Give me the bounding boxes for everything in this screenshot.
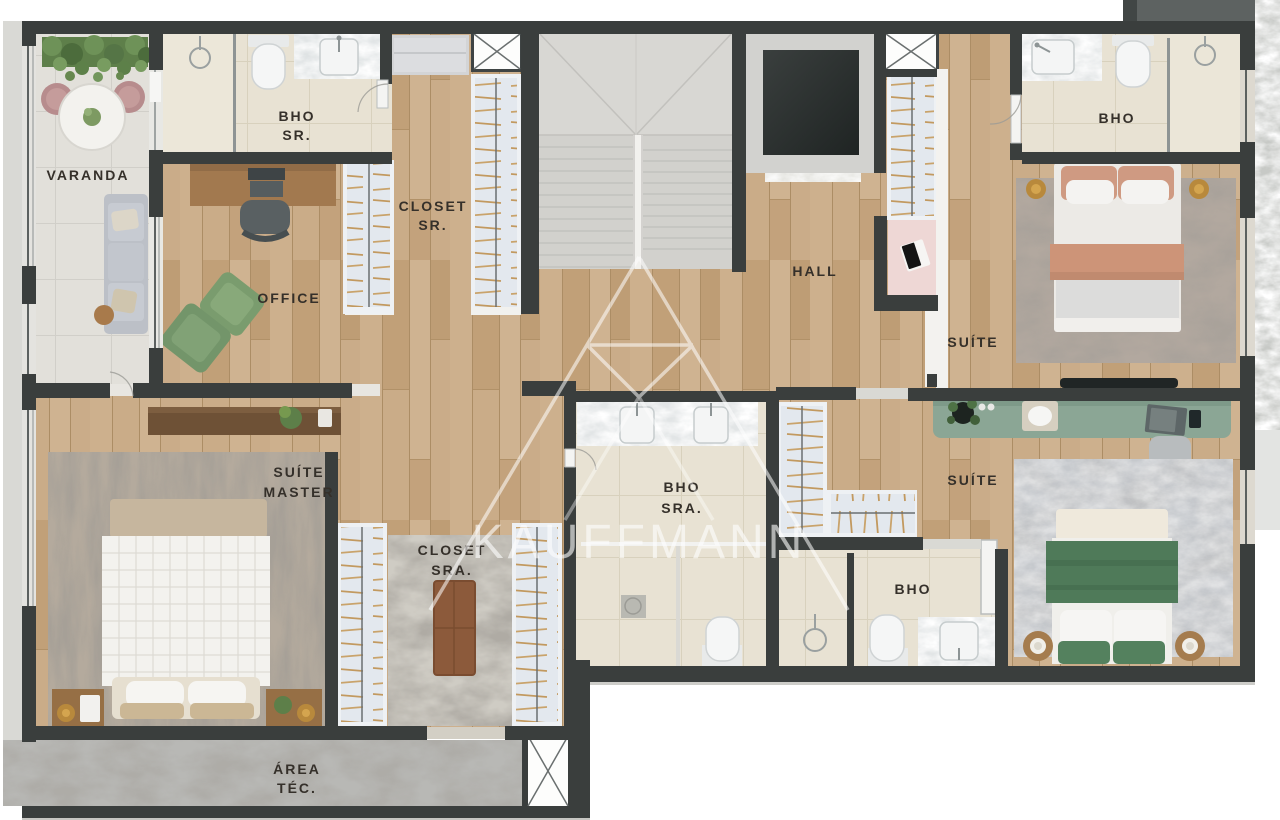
svg-text:SR.: SR. <box>418 217 447 233</box>
svg-text:SUÍTE: SUÍTE <box>947 334 998 350</box>
svg-text:CLOSET: CLOSET <box>399 198 468 214</box>
svg-text:BHO: BHO <box>1098 110 1135 126</box>
svg-text:OFFICE: OFFICE <box>257 290 320 306</box>
svg-text:TÉC.: TÉC. <box>277 780 317 796</box>
svg-text:MASTER: MASTER <box>263 484 334 500</box>
svg-text:SUÍTE: SUÍTE <box>947 472 998 488</box>
svg-text:SUÍTE: SUÍTE <box>273 464 324 480</box>
svg-text:VARANDA: VARANDA <box>47 167 130 183</box>
svg-text:ÁREA: ÁREA <box>273 761 321 777</box>
svg-text:BHO: BHO <box>278 108 315 124</box>
svg-text:BHO: BHO <box>894 581 931 597</box>
svg-text:SR.: SR. <box>282 127 311 143</box>
svg-text:HALL: HALL <box>792 263 837 279</box>
svg-text:SRA.: SRA. <box>661 500 702 516</box>
svg-text:KAUFFMANN: KAUFFMANN <box>472 516 807 569</box>
